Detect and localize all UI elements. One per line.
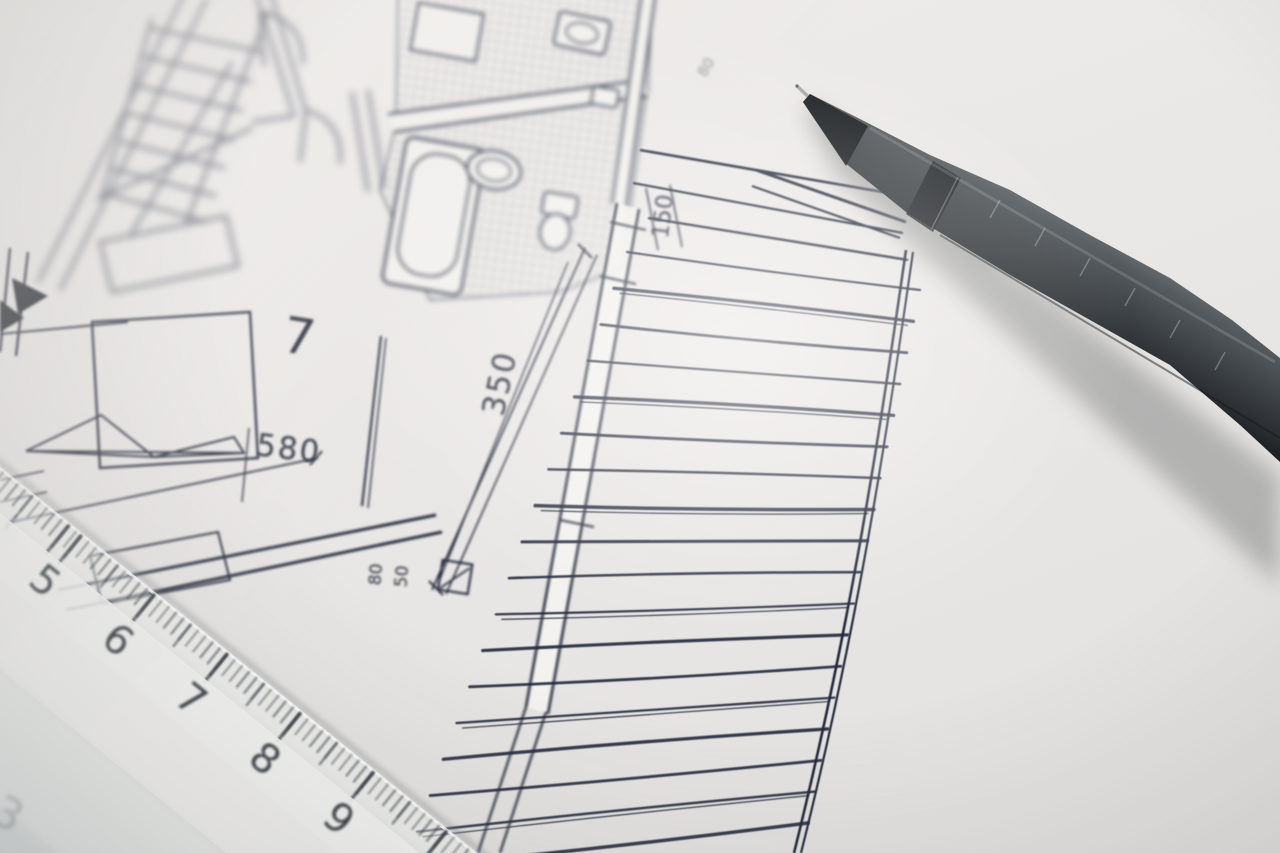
bed [92,312,258,468]
pen [795,84,1280,462]
joist-hatch [404,252,920,853]
pen-barrel [803,94,1280,462]
bathroom-cabinet [410,3,483,62]
dim-50-label: 50 [393,565,412,588]
dim-80-label: 80 [367,563,386,586]
door-arc [306,110,340,164]
dim-580-label: 580 [254,430,322,469]
photo-architectural-plan-scene: 7 580 350 80 50 150 80 5 6 7 8 9 3 [0,0,1280,853]
bed-blanket-mark [26,415,244,457]
dim-150-label: 150 [650,193,678,239]
staircase-drawing [38,0,384,292]
dimension-arrowhead [12,278,48,314]
bathroom-fixture [591,86,620,108]
